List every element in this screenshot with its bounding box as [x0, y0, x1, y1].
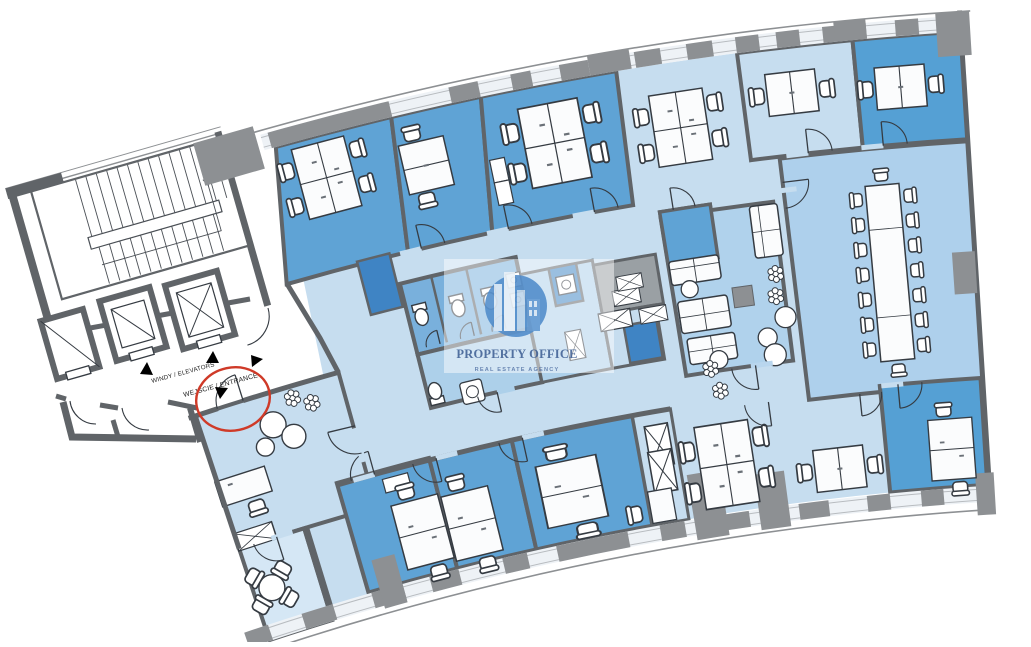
svg-text:REAL ESTATE AGENCY: REAL ESTATE AGENCY [475, 367, 560, 373]
svg-text:PROPERTY OFFICE: PROPERTY OFFICE [456, 347, 577, 361]
